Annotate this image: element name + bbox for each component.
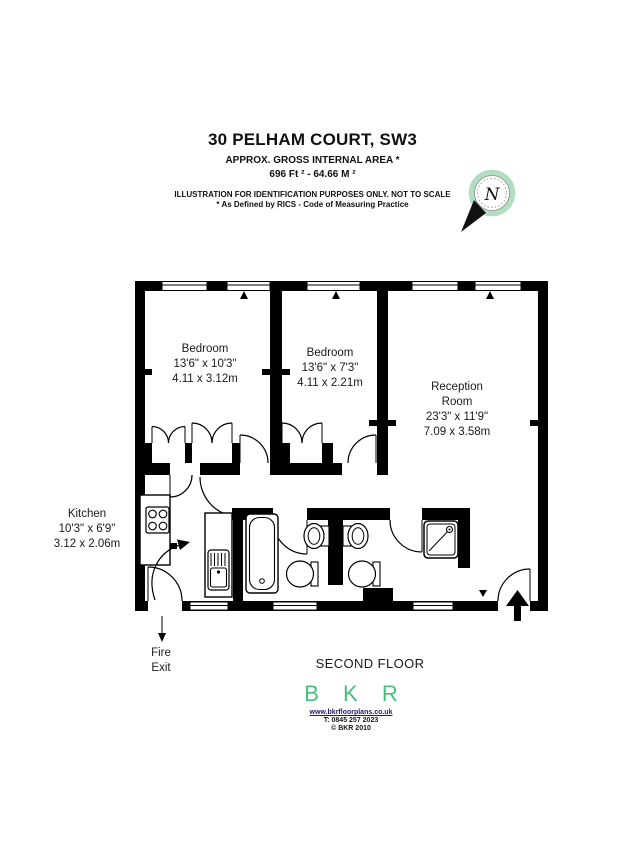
- bathroom-fixtures: [246, 514, 329, 593]
- bedroom2-dims-metric: 4.11 x 2.21m: [297, 377, 363, 389]
- toilet-icon: [287, 561, 319, 587]
- fire-exit-label-line2: Exit: [151, 662, 171, 674]
- bedroom2-door: [348, 435, 376, 463]
- wc-door: [390, 520, 422, 552]
- floorplan-page: 30 PELHAM COURT, SW3 APPROX. GROSS INTER…: [0, 0, 625, 847]
- reception-dims-imperial: 23'3" x 11'9": [426, 411, 488, 423]
- window: [413, 602, 453, 610]
- interior-walls: [135, 291, 470, 602]
- kitchen-dims-imperial: 10'3" x 6'9": [59, 523, 116, 535]
- compass-icon: N: [461, 173, 513, 233]
- compass-north-label: N: [484, 185, 501, 205]
- fire-exit-label-line1: Fire: [151, 647, 171, 659]
- kitchen-dims-metric: 3.12 x 2.06m: [54, 538, 120, 550]
- window: [307, 282, 360, 291]
- bedroom1-dims-metric: 4.11 x 3.12m: [172, 373, 238, 385]
- window: [273, 602, 317, 610]
- wash-basin-icon: [343, 524, 368, 549]
- window: [162, 282, 207, 291]
- floor-plan-drawing: N: [0, 150, 625, 680]
- bathtub-icon: [246, 514, 278, 593]
- kitchen-door: [170, 475, 192, 497]
- bedroom2-dims-imperial: 13'6" x 7'3": [302, 362, 359, 374]
- property-title: 30 PELHAM COURT, SW3: [0, 131, 625, 150]
- reception-name-line1: Reception: [431, 381, 483, 393]
- bedroom2-label: Bedroom 13'6" x 7'3" 4.11 x 2.21m: [297, 347, 363, 389]
- bedroom1-name: Bedroom: [182, 343, 229, 355]
- shower-icon: [424, 521, 458, 558]
- reception-dims-metric: 7.09 x 3.58m: [424, 426, 490, 438]
- toilet-icon: [349, 561, 381, 587]
- entrance-arrow: [506, 590, 529, 621]
- window: [412, 282, 458, 291]
- fire-exit-arrow: [158, 616, 166, 642]
- closet-doors: [152, 423, 322, 443]
- reception-room-label: Reception Room 23'3" x 11'9" 7.09 x 3.58…: [424, 381, 490, 438]
- window: [475, 282, 521, 291]
- sink-icon: [208, 550, 229, 590]
- bedroom1-dims-imperial: 13'6" x 10'3": [173, 358, 236, 370]
- bedroom2-name: Bedroom: [307, 347, 354, 359]
- bkr-copyright: © BKR 2010: [291, 725, 411, 732]
- wash-basin-icon: [304, 524, 329, 549]
- bkr-logo: B K R: [291, 683, 411, 705]
- window: [227, 282, 270, 291]
- kitchen-label: Kitchen 10'3" x 6'9" 3.12 x 2.06m: [54, 508, 120, 550]
- reception-name-line2: Room: [442, 396, 473, 408]
- bkr-website-link[interactable]: www.bkrfloorplans.co.uk: [291, 709, 411, 716]
- bedroom1-door: [240, 435, 268, 463]
- bkr-phone: T: 0845 257 2023: [291, 717, 411, 724]
- window: [190, 602, 228, 610]
- floor-name-label: SECOND FLOOR: [316, 656, 425, 671]
- wc-fixtures: [343, 521, 458, 587]
- hob-icon: [146, 507, 169, 533]
- bedroom1-label: Bedroom 13'6" x 10'3" 4.11 x 3.12m: [172, 343, 238, 385]
- bkr-logo-block: B K R www.bkrfloorplans.co.uk T: 0845 25…: [291, 683, 411, 732]
- kitchen-name: Kitchen: [68, 508, 106, 520]
